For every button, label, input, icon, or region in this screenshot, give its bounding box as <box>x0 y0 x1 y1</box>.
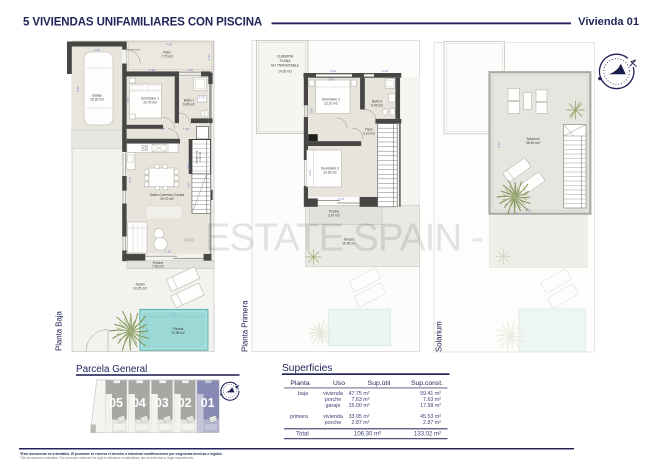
svg-text:45.53 m²: 45.53 m² <box>420 414 441 420</box>
svg-text:baja: baja <box>298 391 308 397</box>
svg-text:47.75 m²: 47.75 m² <box>349 391 370 397</box>
svg-text:7.63 m²: 7.63 m² <box>423 397 441 403</box>
svg-text:7.63 m2: 7.63 m2 <box>152 265 164 269</box>
svg-text:Planta Primera: Planta Primera <box>241 300 250 352</box>
svg-text:10.75 m2: 10.75 m2 <box>143 101 157 105</box>
svg-text:PLANA: PLANA <box>280 59 292 63</box>
svg-text:5 VIVIENDAS UNIFAMILIARES CON: 5 VIVIENDAS UNIFAMILIARES CON PISCINA <box>23 17 262 29</box>
svg-text:2.70: 2.70 <box>198 95 204 99</box>
svg-text:15.20 m2: 15.20 m2 <box>90 98 104 102</box>
svg-text:01: 01 <box>201 396 215 410</box>
svg-text:1.87: 1.87 <box>207 54 211 60</box>
svg-text:3.40: 3.40 <box>308 170 312 176</box>
svg-text:2.90: 2.90 <box>328 78 334 82</box>
svg-text:garaje: garaje <box>326 403 341 409</box>
svg-text:02: 02 <box>178 396 192 410</box>
svg-text:Sup.útil: Sup.útil <box>368 380 391 387</box>
svg-text:3.70: 3.70 <box>126 97 130 103</box>
svg-text:4.90: 4.90 <box>166 43 172 47</box>
svg-text:5.45 m2: 5.45 m2 <box>371 104 383 108</box>
svg-text:primera: primera <box>290 414 308 420</box>
svg-text:vivienda: vivienda <box>323 414 343 420</box>
svg-text:1.00: 1.00 <box>183 127 189 131</box>
svg-text:33.05 m²: 33.05 m² <box>349 414 370 420</box>
svg-text:1.07: 1.07 <box>159 127 165 131</box>
svg-text:3.00: 3.00 <box>94 48 100 52</box>
svg-text:porche: porche <box>325 420 341 426</box>
svg-text:vivienda: vivienda <box>323 391 343 397</box>
svg-text:10.25 m2: 10.25 m2 <box>133 287 147 291</box>
svg-text:59.41 m²: 59.41 m² <box>420 391 441 397</box>
svg-text:10.98 m2: 10.98 m2 <box>171 331 185 335</box>
svg-text:4.25: 4.25 <box>525 209 531 213</box>
svg-text:1.00: 1.00 <box>187 68 193 72</box>
svg-text:Solarium: Solarium <box>435 321 444 352</box>
svg-text:14.20 m2: 14.20 m2 <box>278 70 292 74</box>
svg-text:04: 04 <box>132 396 146 410</box>
svg-text:This document is indicative. T: This document is indicative. The promote… <box>20 456 194 460</box>
svg-text:6.85 m2: 6.85 m2 <box>183 103 195 107</box>
svg-text:15.00 m²: 15.00 m² <box>349 403 370 409</box>
svg-text:CUBIERTA: CUBIERTA <box>277 55 294 59</box>
svg-text:Planta Baja: Planta Baja <box>55 310 64 351</box>
svg-text:Uso: Uso <box>333 380 345 387</box>
svg-text:2.87 m²: 2.87 m² <box>423 420 441 426</box>
svg-text:38.90 m2: 38.90 m2 <box>526 141 540 145</box>
svg-text:2.10: 2.10 <box>382 69 388 73</box>
svg-text:5.50: 5.50 <box>76 86 80 92</box>
svg-text:Total: Total <box>296 431 309 437</box>
svg-text:Parcela General: Parcela General <box>76 364 147 375</box>
svg-text:7.75 m2: 7.75 m2 <box>161 55 173 59</box>
svg-text:porche: porche <box>325 397 341 403</box>
svg-text:Planta: Planta <box>290 380 309 387</box>
svg-text:4.50: 4.50 <box>186 182 190 188</box>
svg-text:29.70 m2: 29.70 m2 <box>160 197 174 201</box>
svg-text:2.87 m²: 2.87 m² <box>352 420 370 426</box>
svg-text:3.10 m2: 3.10 m2 <box>363 132 375 136</box>
svg-text:17.58 m²: 17.58 m² <box>420 403 441 409</box>
svg-text:NO TRANSITABLE: NO TRANSITABLE <box>271 63 300 67</box>
svg-text:2.90: 2.90 <box>149 68 155 72</box>
svg-text:133.02 m²: 133.02 m² <box>414 431 441 437</box>
svg-text:Salón-Comedor-Cocina: Salón-Comedor-Cocina <box>150 193 185 197</box>
svg-text:14.20 m2: 14.20 m2 <box>323 171 337 175</box>
svg-text:05: 05 <box>109 396 123 410</box>
svg-text:6.75: 6.75 <box>128 177 132 183</box>
svg-text:Sup.const.: Sup.const. <box>411 380 443 387</box>
svg-text:2.40 m2: 2.40 m2 <box>198 152 202 163</box>
svg-text:- ESTATE SPAIN -: - ESTATE SPAIN - <box>183 217 483 260</box>
svg-text:3.90: 3.90 <box>186 163 190 169</box>
svg-text:03: 03 <box>155 396 169 410</box>
svg-text:12.10 m2: 12.10 m2 <box>324 102 338 106</box>
svg-text:8.37: 8.37 <box>497 142 501 148</box>
svg-text:Vivienda 01: Vivienda 01 <box>578 16 639 28</box>
svg-text:Superficies: Superficies <box>282 363 332 374</box>
svg-text:2.86: 2.86 <box>310 108 314 114</box>
svg-text:7.63 m²: 7.63 m² <box>352 397 370 403</box>
svg-text:106.30 m²: 106.30 m² <box>354 431 381 437</box>
svg-text:3.10: 3.10 <box>330 69 336 73</box>
svg-text:4.35: 4.35 <box>170 313 176 317</box>
svg-text:1.30: 1.30 <box>165 250 171 254</box>
